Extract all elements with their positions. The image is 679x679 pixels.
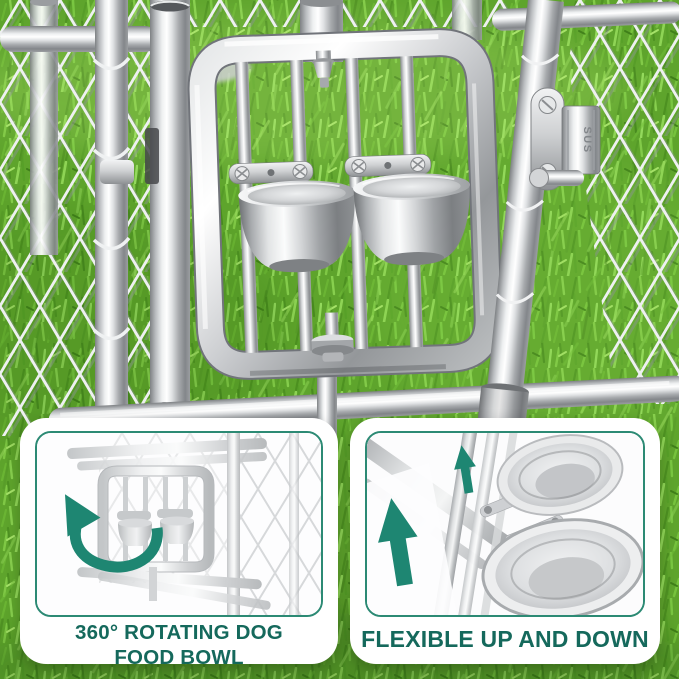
- product-image: SUS: [0, 0, 679, 679]
- flexible-inset-image: [365, 431, 645, 617]
- rotating-bowl-caption: 360° ROTATING DOG FOOD BOWL: [20, 620, 338, 670]
- caption-line-1: FLEXIBLE UP AND DOWN: [350, 626, 660, 652]
- latch-brand-text: SUS: [581, 126, 593, 153]
- flexible-caption: FLEXIBLE UP AND DOWN: [350, 626, 660, 652]
- chain-link-fence-left: [0, 0, 152, 436]
- rotating-bowl-inset-image: [35, 431, 323, 617]
- callout-card-flexible: FLEXIBLE UP AND DOWN: [350, 418, 660, 664]
- callout-card-rotating-bowl: 360° ROTATING DOG FOOD BOWL: [20, 418, 338, 664]
- caption-line-2: FOOD BOWL: [20, 645, 338, 670]
- caption-line-1: 360° ROTATING DOG: [20, 620, 338, 645]
